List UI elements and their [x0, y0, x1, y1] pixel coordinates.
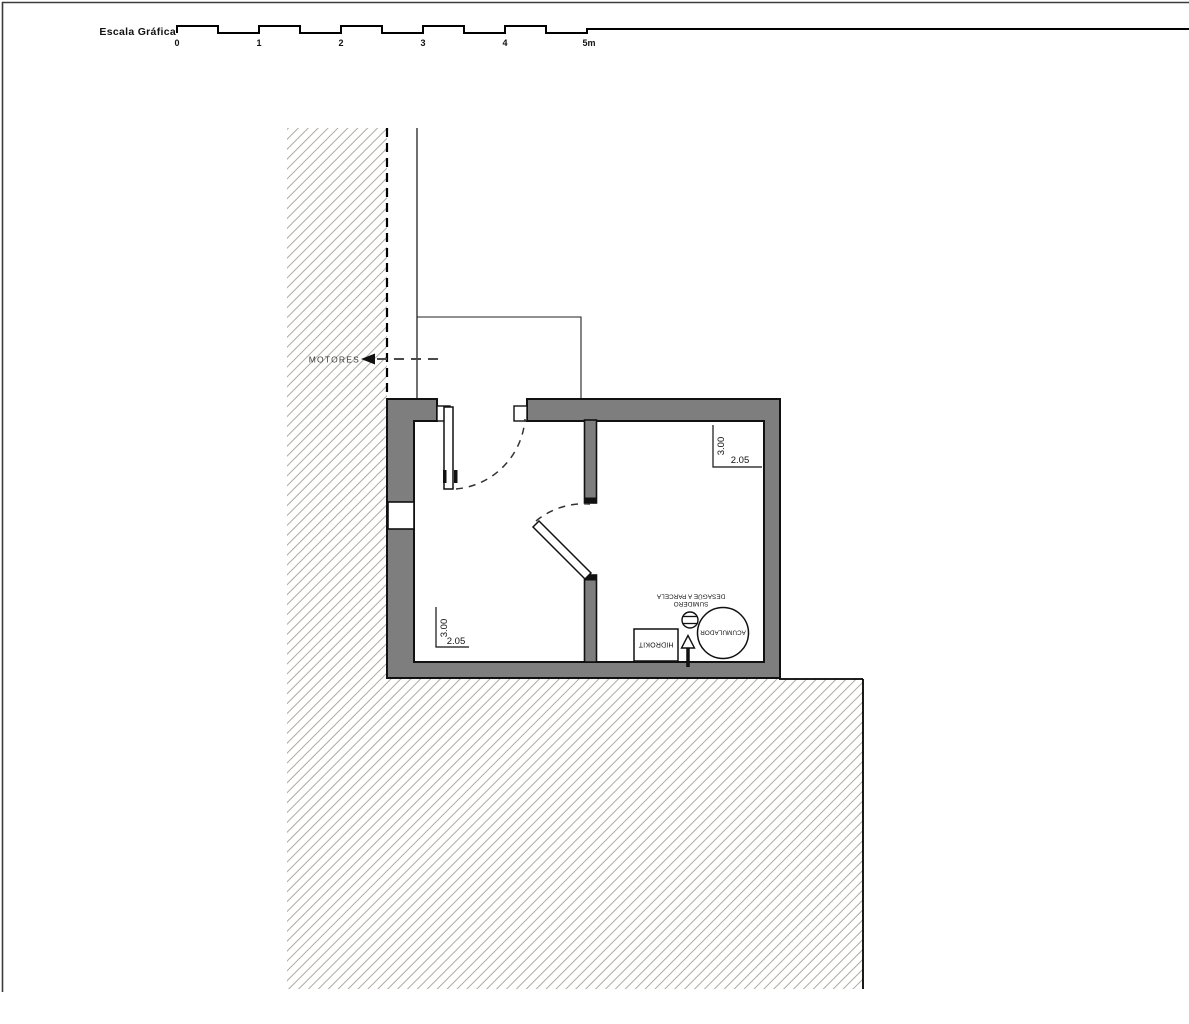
dim-left-width: 2.05	[447, 636, 466, 647]
drawing-sheet: Escala Gráfica 0 1 2 3 4 5m MOTORES 3.00…	[0, 0, 1189, 1024]
scale-title: Escala Gráfica	[99, 26, 176, 38]
dim-right-depth: 3.00	[716, 437, 727, 456]
scale-tick-3: 3	[420, 38, 425, 48]
entry-door-stop-right	[454, 470, 458, 483]
acumulador-label: ACUMULADOR	[700, 629, 746, 636]
partition-wall-lower	[585, 575, 597, 662]
scale-tick-2: 2	[338, 38, 343, 48]
dim-right-width: 2.05	[731, 455, 750, 466]
hidrokit-label: HIDROKIT	[638, 641, 674, 648]
sumidero-label: SUMIDERO DESAGÜE A PARCELA	[656, 593, 725, 608]
partition-wall-upper	[585, 420, 597, 503]
sumidero-icon	[682, 612, 698, 628]
scale-tick-5: 5m	[582, 38, 595, 48]
interior-door-swing-arc	[536, 504, 590, 521]
sumidero-label-line2: DESAGÜE A PARCELA	[656, 593, 725, 601]
scale-tick-1: 1	[256, 38, 261, 48]
motores-label: MOTORES	[309, 355, 360, 365]
partition-cap-upper	[585, 498, 597, 504]
scale-bar	[177, 26, 1189, 33]
dim-left-depth: 3.00	[439, 619, 450, 638]
annex-outline	[417, 317, 581, 399]
scale-tick-4: 4	[502, 38, 507, 48]
wall-niche	[388, 502, 414, 529]
scale-tick-0: 0	[174, 38, 179, 48]
interior-door-leaf	[533, 521, 591, 579]
entry-door-swing-arc	[456, 419, 525, 489]
sumidero-label-line1: SUMIDERO	[674, 600, 709, 607]
entry-door-stop-left	[443, 470, 447, 483]
entry-jamb-right	[514, 406, 527, 421]
